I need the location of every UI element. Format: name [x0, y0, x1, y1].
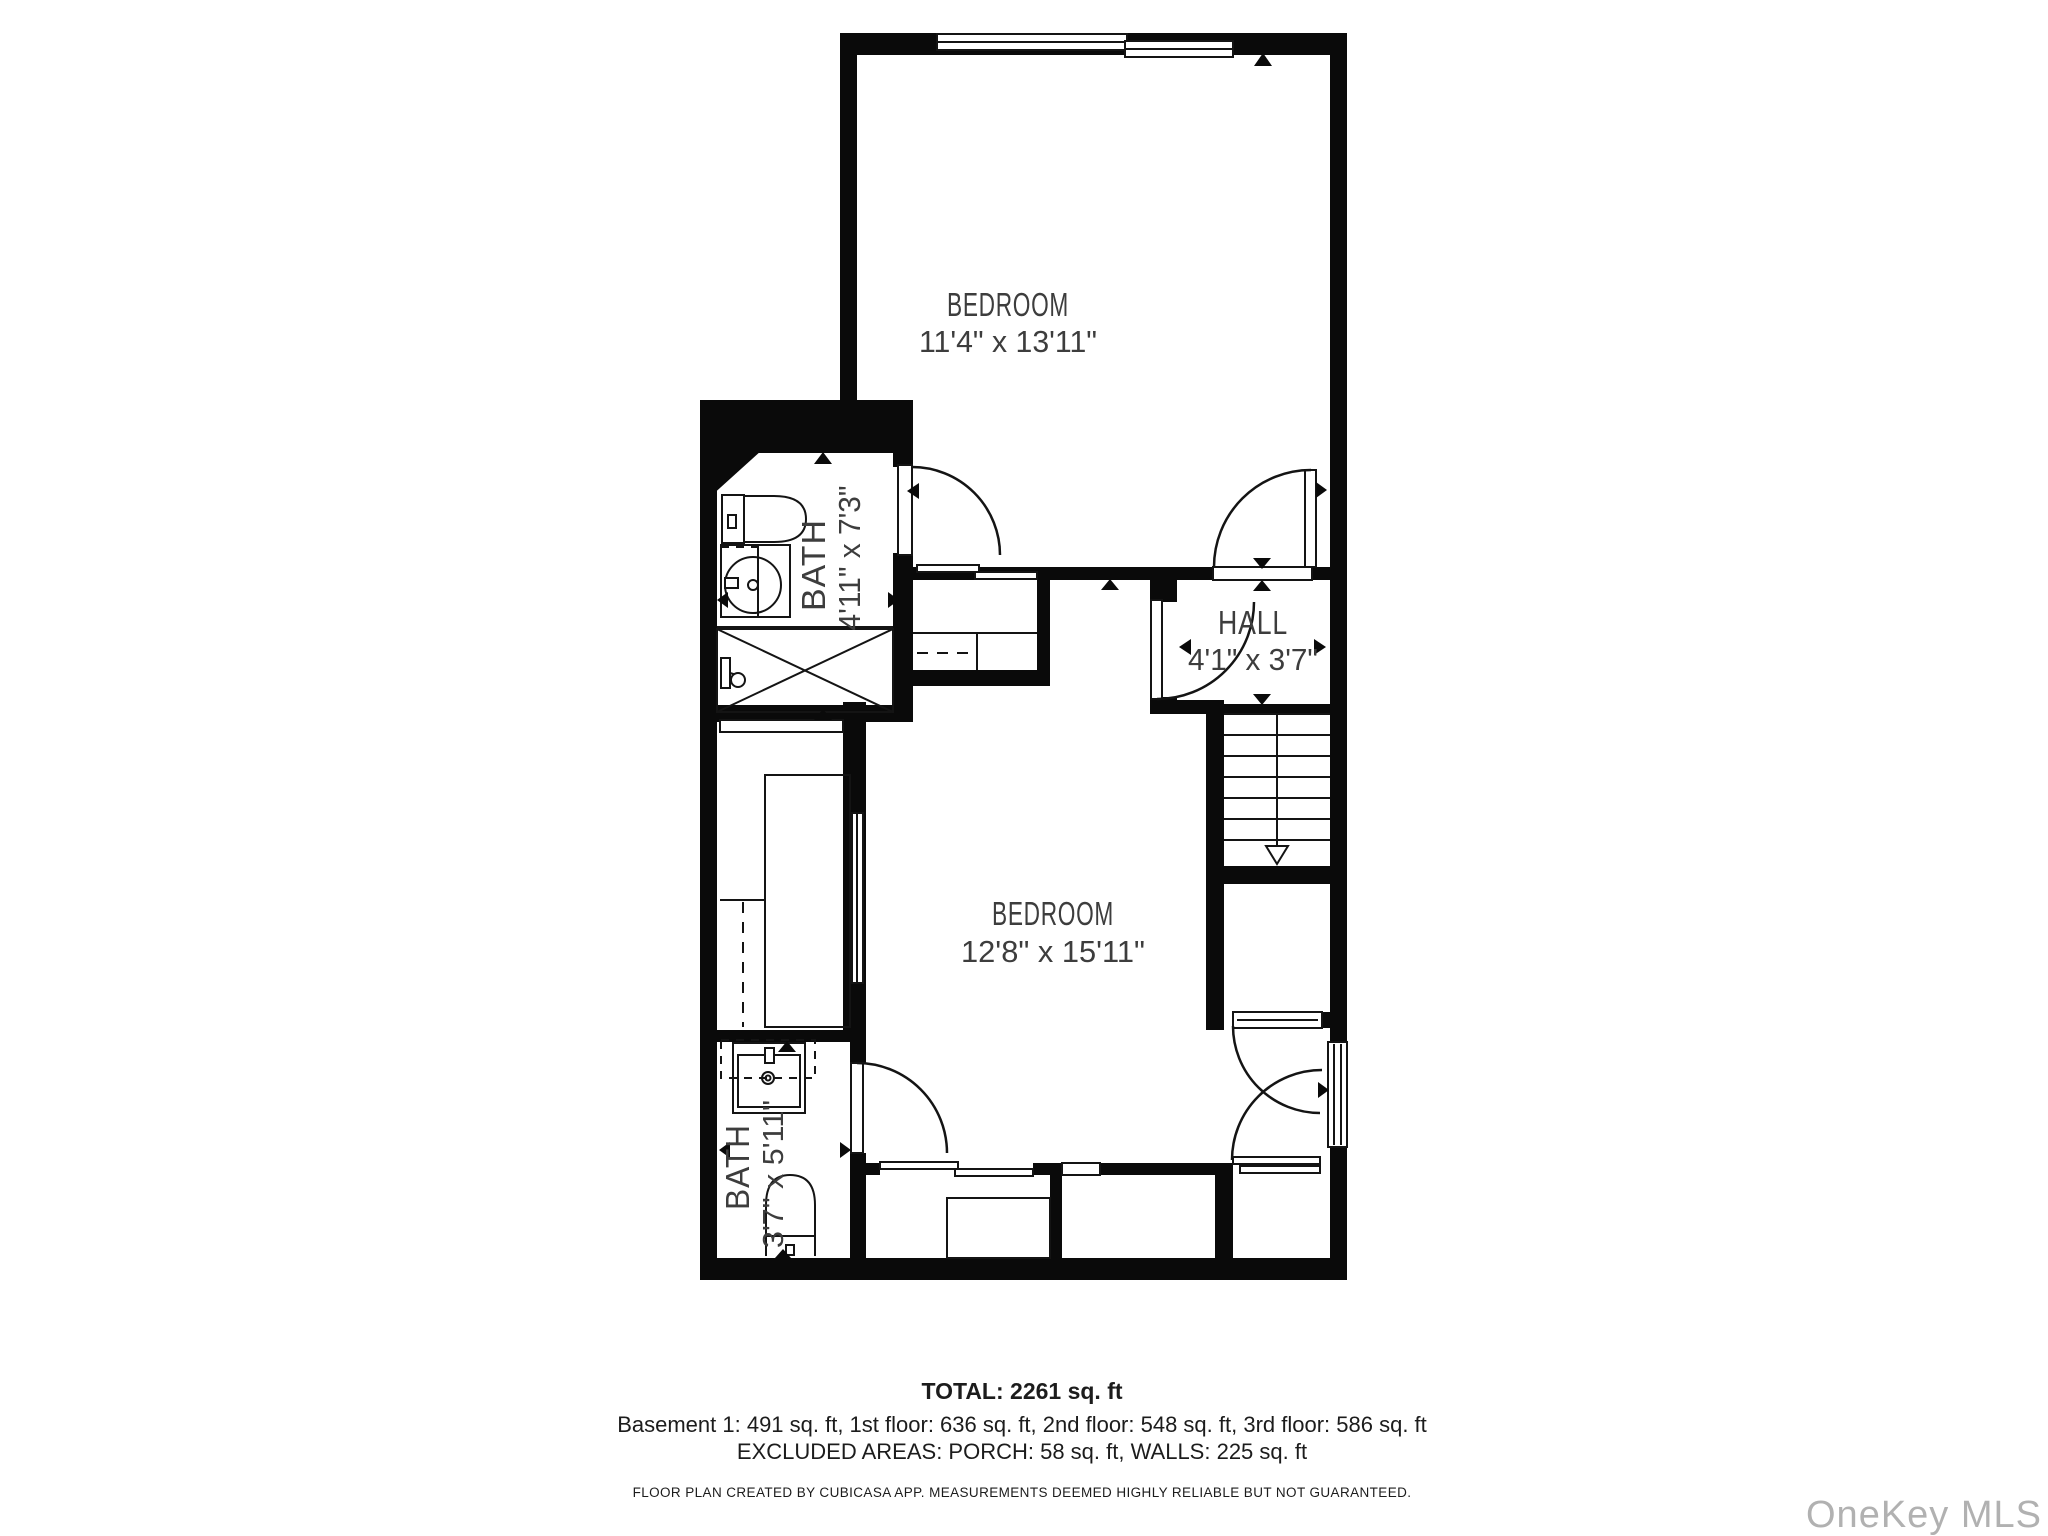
wall: [840, 33, 857, 415]
toilet-icon: [722, 495, 806, 543]
wall: [1215, 1163, 1233, 1280]
wall: [1040, 567, 1213, 580]
wall: [866, 1163, 880, 1175]
room-dims-bedroom-mid: 12'8" x 15'11": [961, 934, 1145, 969]
opening-closet-right: [1062, 1163, 1100, 1175]
wall: [907, 670, 1050, 686]
wall: [1100, 1163, 1215, 1175]
marker-icon: [1253, 694, 1271, 705]
area-summary: TOTAL: 2261 sq. ft Basement 1: 491 sq. f…: [617, 1378, 1427, 1500]
wall: [1037, 567, 1050, 686]
wall: [1050, 1163, 1062, 1280]
watermark: OneKey MLS: [1806, 1494, 2042, 1536]
room-dims-bath-top: 4'11" x 7'3": [832, 486, 867, 631]
marker-icon: [1253, 580, 1271, 591]
room-dims-hall: 4'1" x 3'7": [1188, 642, 1318, 677]
wall: [1312, 567, 1347, 580]
room-label-bedroom-mid: BEDROOM: [992, 895, 1114, 932]
door-bath-top: [898, 465, 1000, 555]
floor-plan-canvas: BEDROOM 11'4" x 13'11" BATH 4'11" x 7'3"…: [0, 0, 2048, 1536]
room-dims-bedroom-top: 11'4" x 13'11": [919, 324, 1097, 359]
wall: [1224, 704, 1330, 713]
floor-plan-page: BEDROOM 11'4" x 13'11" BATH 4'11" x 7'3"…: [0, 0, 2048, 1536]
stairs-down-arrow: [1266, 846, 1288, 864]
door-bath-bottom: [851, 1063, 947, 1153]
window-top-left: [937, 34, 1127, 50]
disclaimer: FLOOR PLAN CREATED BY CUBICASA APP. MEAS…: [633, 1485, 1412, 1500]
window-closet-bedroom: [852, 813, 863, 983]
door-exterior-landing: [1232, 1042, 1347, 1160]
shower-icon: [717, 629, 893, 712]
room-label-hall: HALL: [1218, 604, 1288, 641]
shelf: [720, 720, 843, 732]
wall: [850, 1153, 866, 1260]
closet-bottom-shelf: [947, 1198, 1050, 1258]
sliding-door-bedroom-closet: [880, 1162, 1033, 1176]
wall: [1322, 1012, 1330, 1028]
room-dims-bath-bottom: 3'7" x 5'11": [758, 1100, 790, 1248]
room-label-bedroom-top: BEDROOM: [947, 286, 1069, 323]
sink-icon: [721, 545, 790, 617]
wall: [1033, 1163, 1050, 1175]
room-label-bath-bottom: BATH: [719, 1124, 756, 1210]
summary-excluded: EXCLUDED AREAS: PORCH: 58 sq. ft, WALLS:…: [737, 1439, 1307, 1464]
wall: [1206, 707, 1224, 1030]
wall-chamfer: [710, 450, 762, 497]
marker-icon: [1316, 482, 1327, 498]
staircase-down: [1224, 714, 1330, 864]
marker-icon: [717, 592, 728, 608]
window-top-right: [1125, 41, 1233, 57]
door-under-stairs: [1233, 1012, 1322, 1113]
sliding-door-landing: [1233, 1157, 1320, 1173]
wall: [700, 400, 913, 453]
marker-icon: [814, 452, 832, 464]
wall: [1224, 866, 1330, 884]
wall: [850, 1042, 866, 1063]
wardrobe: [765, 775, 850, 1027]
wall: [1150, 580, 1177, 602]
marker-icon: [840, 1142, 851, 1158]
room-label-bath-top: BATH: [795, 519, 832, 611]
summary-floors: Basement 1: 491 sq. ft, 1st floor: 636 s…: [617, 1412, 1427, 1437]
wall: [700, 400, 717, 1280]
marker-icon: [1101, 579, 1119, 590]
summary-total: TOTAL: 2261 sq. ft: [921, 1378, 1122, 1404]
wall: [700, 1258, 1347, 1280]
